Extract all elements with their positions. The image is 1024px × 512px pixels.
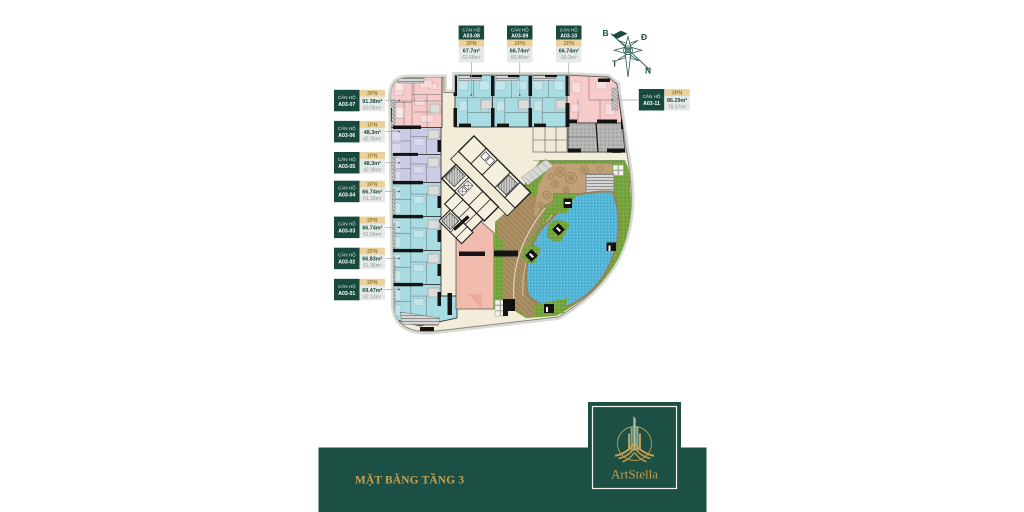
svg-text:67.7m²: 67.7m²: [463, 49, 480, 55]
svg-text:1PN: 1PN: [367, 122, 378, 128]
svg-text:86.29m²: 86.29m²: [667, 98, 687, 104]
svg-text:66.74m²: 66.74m²: [362, 226, 382, 232]
svg-text:62.14m²: 62.14m²: [363, 294, 382, 300]
svg-text:66.74m²: 66.74m²: [510, 49, 530, 55]
svg-text:CĂN HỘ: CĂN HỘ: [643, 93, 661, 99]
svg-text:Đ: Đ: [641, 32, 647, 42]
svg-text:CĂN HỘ: CĂN HỘ: [338, 283, 356, 289]
svg-text:1PN: 1PN: [367, 153, 378, 159]
svg-text:2PN: 2PN: [367, 280, 378, 286]
svg-text:66.83m²: 66.83m²: [362, 257, 382, 263]
svg-text:B: B: [603, 28, 609, 38]
svg-text:62.68m²: 62.68m²: [462, 55, 481, 61]
svg-text:CĂN HỘ: CĂN HỘ: [338, 252, 356, 258]
svg-text:CĂN HỘ: CĂN HỘ: [338, 94, 356, 100]
svg-text:A03-02: A03-02: [338, 260, 355, 266]
svg-text:A03-06: A03-06: [338, 133, 355, 139]
svg-text:2PN: 2PN: [564, 41, 575, 47]
svg-text:48.3m²: 48.3m²: [364, 161, 381, 167]
svg-text:61.38m²: 61.38m²: [363, 263, 382, 269]
svg-text:CĂN HỘ: CĂN HỘ: [338, 156, 356, 162]
svg-text:ArtStella: ArtStella: [611, 467, 658, 482]
svg-text:A03-01: A03-01: [338, 291, 355, 297]
svg-text:2PN: 2PN: [367, 218, 378, 224]
svg-text:A03-08: A03-08: [463, 34, 480, 40]
svg-text:A03-10: A03-10: [560, 34, 577, 40]
svg-text:66.74m²: 66.74m²: [559, 49, 579, 55]
svg-text:2PN: 2PN: [367, 182, 378, 188]
svg-text:CĂN HỘ: CĂN HỘ: [338, 125, 356, 131]
svg-text:CĂN HỘ: CĂN HỘ: [338, 185, 356, 191]
svg-text:A03-05: A03-05: [338, 164, 355, 170]
svg-text:N: N: [645, 66, 651, 76]
svg-text:69.47m²: 69.47m²: [362, 288, 382, 294]
svg-text:2PN: 2PN: [367, 249, 378, 255]
svg-text:A03-03: A03-03: [338, 229, 355, 235]
svg-text:2PN: 2PN: [515, 41, 526, 47]
svg-text:42.98m²: 42.98m²: [363, 168, 382, 174]
svg-text:CĂN HỘ: CĂN HỘ: [338, 221, 356, 227]
svg-text:83.06m²: 83.06m²: [363, 105, 382, 111]
svg-text:60.3m²: 60.3m²: [561, 55, 577, 61]
svg-text:91.38m²: 91.38m²: [362, 99, 382, 105]
svg-text:MẶT BẰNG TẦNG 3: MẶT BẰNG TẦNG 3: [355, 474, 464, 487]
svg-text:2PN: 2PN: [466, 41, 477, 47]
svg-text:78.57m²: 78.57m²: [668, 105, 687, 111]
svg-text:A03-09: A03-09: [511, 34, 528, 40]
svg-text:61.33m²: 61.33m²: [363, 196, 382, 202]
svg-text:66.74m²: 66.74m²: [362, 190, 382, 196]
svg-text:A03-11: A03-11: [643, 101, 660, 107]
svg-text:A03-07: A03-07: [338, 102, 355, 108]
svg-text:CĂN HỘ: CĂN HỘ: [462, 27, 480, 33]
svg-text:61.04m²: 61.04m²: [363, 232, 382, 238]
svg-text:3PN: 3PN: [367, 91, 378, 97]
svg-text:CĂN HỘ: CĂN HỘ: [560, 27, 578, 33]
svg-text:T: T: [612, 59, 618, 69]
svg-text:48.3m²: 48.3m²: [364, 130, 381, 136]
svg-text:60.96m²: 60.96m²: [511, 55, 530, 61]
svg-text:CĂN HỘ: CĂN HỘ: [511, 27, 529, 33]
svg-text:A03-04: A03-04: [338, 193, 355, 199]
svg-text:42.95m²: 42.95m²: [363, 136, 382, 142]
svg-text:3PN: 3PN: [672, 90, 683, 96]
